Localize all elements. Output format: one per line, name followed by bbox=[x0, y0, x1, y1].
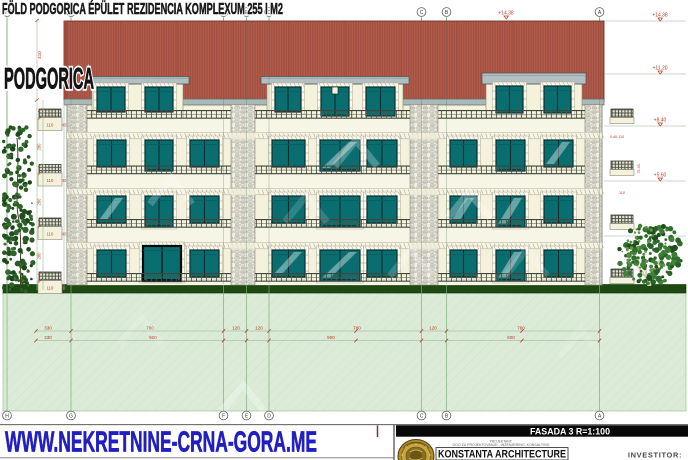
svg-text:+11.20: +11.20 bbox=[652, 66, 667, 72]
svg-text:G: G bbox=[69, 414, 73, 420]
svg-text:C: C bbox=[420, 414, 424, 420]
svg-text:280: 280 bbox=[37, 252, 42, 260]
svg-text:40: 40 bbox=[62, 123, 67, 128]
svg-text:75 45: 75 45 bbox=[637, 164, 641, 174]
svg-text:900: 900 bbox=[327, 335, 335, 340]
svg-text:280: 280 bbox=[37, 143, 42, 151]
svg-text:WWW.NEKRETNINE-CRNA-GORA.ME: WWW.NEKRETNINE-CRNA-GORA.ME bbox=[5, 427, 317, 459]
svg-text:+14.38: +14.38 bbox=[652, 13, 668, 19]
svg-text:C: C bbox=[420, 10, 424, 16]
svg-text:DOO ZA PROJEKTOVANJE , INŽENJ: DOO ZA PROJEKTOVANJE , INŽENJERING, KONS… bbox=[452, 442, 549, 447]
svg-text:110: 110 bbox=[47, 232, 54, 237]
svg-text:D: D bbox=[267, 414, 271, 420]
svg-text:0.40 110: 0.40 110 bbox=[610, 135, 625, 139]
svg-text:600: 600 bbox=[507, 335, 515, 340]
svg-text:PODGORICA: PODGORICA bbox=[4, 63, 94, 96]
svg-text:120: 120 bbox=[232, 326, 240, 331]
svg-text:780: 780 bbox=[517, 326, 525, 331]
svg-text:FÖLD PODGORICA ÉPÜLET REZIDENC: FÖLD PODGORICA ÉPÜLET REZIDENCIA KOMPLEX… bbox=[2, 0, 283, 18]
svg-text:330: 330 bbox=[44, 335, 52, 340]
svg-text:120: 120 bbox=[429, 326, 437, 331]
svg-text:780: 780 bbox=[353, 326, 361, 331]
svg-text:+5.60: +5.60 bbox=[654, 173, 667, 179]
svg-text:40: 40 bbox=[62, 178, 67, 183]
svg-text:110: 110 bbox=[619, 191, 625, 195]
svg-text:110: 110 bbox=[47, 178, 54, 183]
svg-text:40: 40 bbox=[62, 286, 67, 291]
svg-text:KONSTANTA ARCHITECTURE: KONSTANTA ARCHITECTURE bbox=[438, 448, 566, 460]
svg-text:110: 110 bbox=[47, 286, 54, 291]
svg-text:40: 40 bbox=[62, 232, 67, 237]
svg-text:F: F bbox=[222, 414, 225, 420]
svg-text:+14.38: +14.38 bbox=[498, 11, 514, 17]
svg-text:120: 120 bbox=[255, 326, 263, 331]
svg-text:280: 280 bbox=[37, 198, 42, 206]
svg-text:H: H bbox=[5, 414, 9, 420]
svg-text:330: 330 bbox=[44, 326, 52, 331]
svg-text:INVESTITOR:: INVESTITOR: bbox=[628, 451, 682, 460]
svg-text:FASADA 3 R=1:100: FASADA 3 R=1:100 bbox=[530, 427, 610, 437]
svg-text:+8.40: +8.40 bbox=[654, 118, 667, 124]
svg-text:410: 410 bbox=[37, 51, 42, 59]
svg-text:110: 110 bbox=[47, 123, 54, 128]
